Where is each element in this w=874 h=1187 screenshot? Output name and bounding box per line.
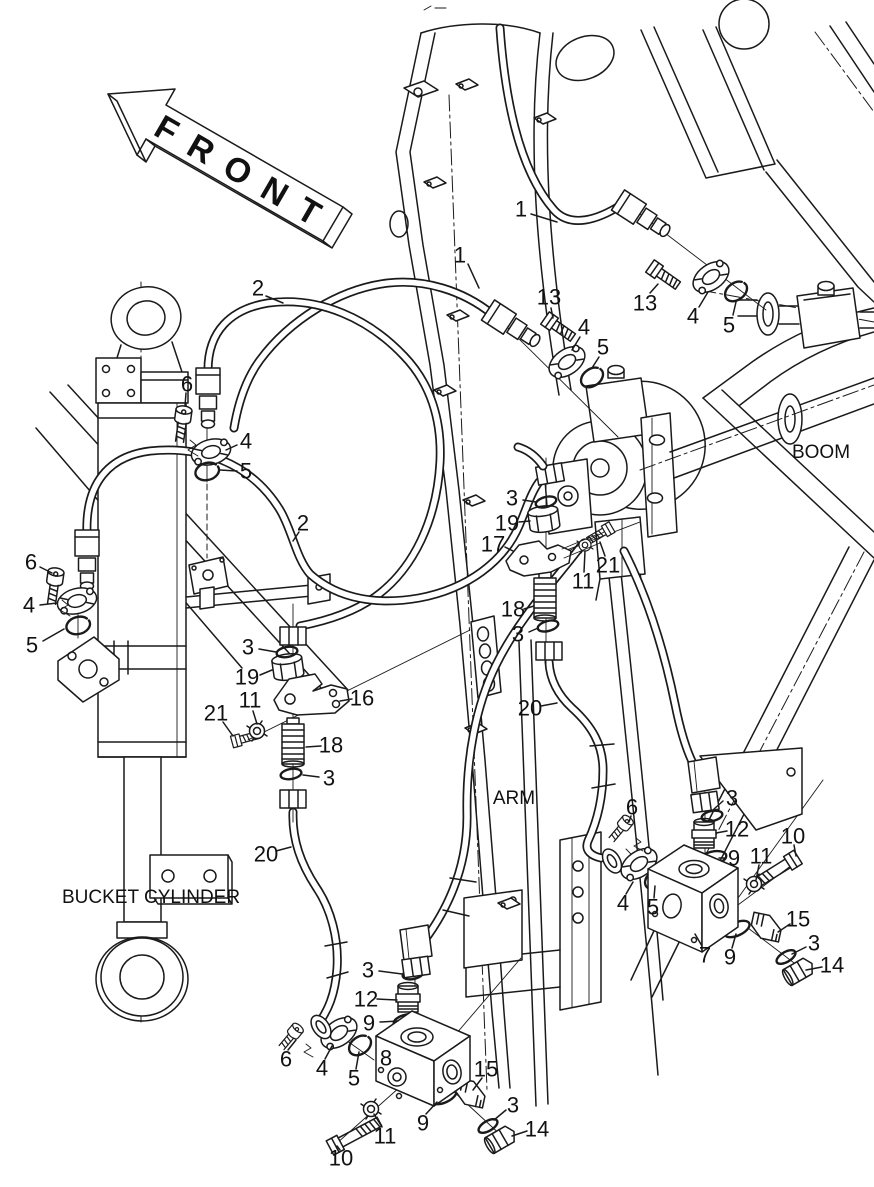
arm-label: ARM bbox=[493, 788, 535, 809]
callout-11: 11 bbox=[239, 688, 262, 713]
callout-3: 3 bbox=[242, 635, 254, 660]
callout-4: 4 bbox=[617, 891, 629, 916]
callout-11: 11 bbox=[750, 844, 773, 869]
leader-line bbox=[40, 603, 57, 605]
callout-21: 21 bbox=[204, 701, 228, 726]
callout-4: 4 bbox=[578, 315, 590, 340]
callout-6: 6 bbox=[280, 1047, 292, 1072]
leader-line bbox=[377, 999, 397, 1000]
callout-3: 3 bbox=[506, 486, 518, 511]
callout-9: 9 bbox=[417, 1111, 429, 1136]
callout-9: 9 bbox=[363, 1011, 375, 1036]
callout-14: 14 bbox=[820, 953, 844, 978]
callout-12: 12 bbox=[725, 817, 749, 842]
leader-line bbox=[699, 292, 708, 307]
callout-9: 9 bbox=[728, 846, 740, 871]
callout-20: 20 bbox=[518, 696, 542, 721]
callout-10: 10 bbox=[781, 824, 805, 849]
callout-10: 10 bbox=[329, 1146, 353, 1171]
callout-3: 3 bbox=[362, 958, 374, 983]
bucket-cylinder-label: BUCKET CYLINDER bbox=[62, 887, 240, 908]
leader-line bbox=[468, 264, 479, 288]
callout-3: 3 bbox=[726, 786, 738, 811]
junction-blocks bbox=[376, 845, 738, 1106]
callout-9: 9 bbox=[724, 945, 736, 970]
parts-diagram-page: FRONT www.simbrottoo.kz BOOM ARM BUCKET … bbox=[0, 0, 874, 1187]
callout-7: 7 bbox=[699, 943, 711, 968]
callout-1: 1 bbox=[454, 243, 466, 268]
callout-21: 21 bbox=[596, 553, 620, 578]
leader-line bbox=[253, 711, 257, 724]
callout-3: 3 bbox=[808, 931, 820, 956]
callout-5: 5 bbox=[240, 459, 252, 484]
callout-3: 3 bbox=[507, 1093, 519, 1118]
callout-4: 4 bbox=[23, 593, 35, 618]
leader-line bbox=[379, 971, 402, 974]
callout-4: 4 bbox=[240, 429, 252, 454]
leader-line bbox=[380, 1021, 398, 1022]
leader-line bbox=[519, 521, 530, 522]
callout-5: 5 bbox=[647, 895, 659, 920]
front-label: FRONT bbox=[148, 108, 336, 238]
callout-12: 12 bbox=[354, 987, 378, 1012]
callout-18: 18 bbox=[501, 597, 525, 622]
callout-20: 20 bbox=[254, 842, 278, 867]
callout-13: 13 bbox=[633, 291, 657, 316]
callout-2: 2 bbox=[252, 276, 264, 301]
callout-11: 11 bbox=[572, 569, 595, 594]
callout-6: 6 bbox=[626, 795, 638, 820]
callout-4: 4 bbox=[687, 304, 699, 329]
leader-line bbox=[220, 470, 237, 471]
leader-line bbox=[494, 1110, 506, 1120]
callout-8: 8 bbox=[380, 1046, 392, 1071]
callout-11: 11 bbox=[374, 1124, 397, 1149]
leader-line bbox=[260, 670, 272, 675]
leader-line bbox=[541, 703, 557, 706]
callout-3: 3 bbox=[323, 766, 335, 791]
callout-18: 18 bbox=[319, 733, 343, 758]
callout-5: 5 bbox=[348, 1066, 360, 1091]
callout-1: 1 bbox=[515, 197, 527, 222]
leader-line bbox=[529, 628, 538, 632]
callout-6: 6 bbox=[25, 550, 37, 575]
callout-15: 15 bbox=[786, 907, 810, 932]
leader-line bbox=[303, 775, 319, 777]
callout-13: 13 bbox=[537, 285, 561, 310]
pivot-hub bbox=[544, 366, 874, 601]
callout-3: 3 bbox=[512, 622, 524, 647]
front-direction-arrow: FRONT bbox=[108, 89, 352, 248]
leader-line bbox=[276, 847, 291, 851]
callout-2: 2 bbox=[297, 511, 309, 536]
callout-14: 14 bbox=[525, 1117, 549, 1142]
callout-17: 17 bbox=[481, 532, 505, 557]
callout-16: 16 bbox=[350, 686, 374, 711]
bucket-cylinder bbox=[58, 280, 330, 1022]
callout-6: 6 bbox=[181, 372, 193, 397]
callout-5: 5 bbox=[26, 633, 38, 658]
callout-5: 5 bbox=[597, 335, 609, 360]
boom-label: BOOM bbox=[792, 442, 850, 463]
callout-4: 4 bbox=[316, 1056, 328, 1081]
leader-line bbox=[43, 629, 64, 641]
callout-19: 19 bbox=[235, 665, 259, 690]
exploded-parts-diagram: FRONT www.simbrottoo.kz BOOM ARM BUCKET … bbox=[0, 0, 874, 1187]
leader-line bbox=[259, 649, 276, 652]
callout-5: 5 bbox=[723, 313, 735, 338]
callout-15: 15 bbox=[474, 1057, 498, 1082]
